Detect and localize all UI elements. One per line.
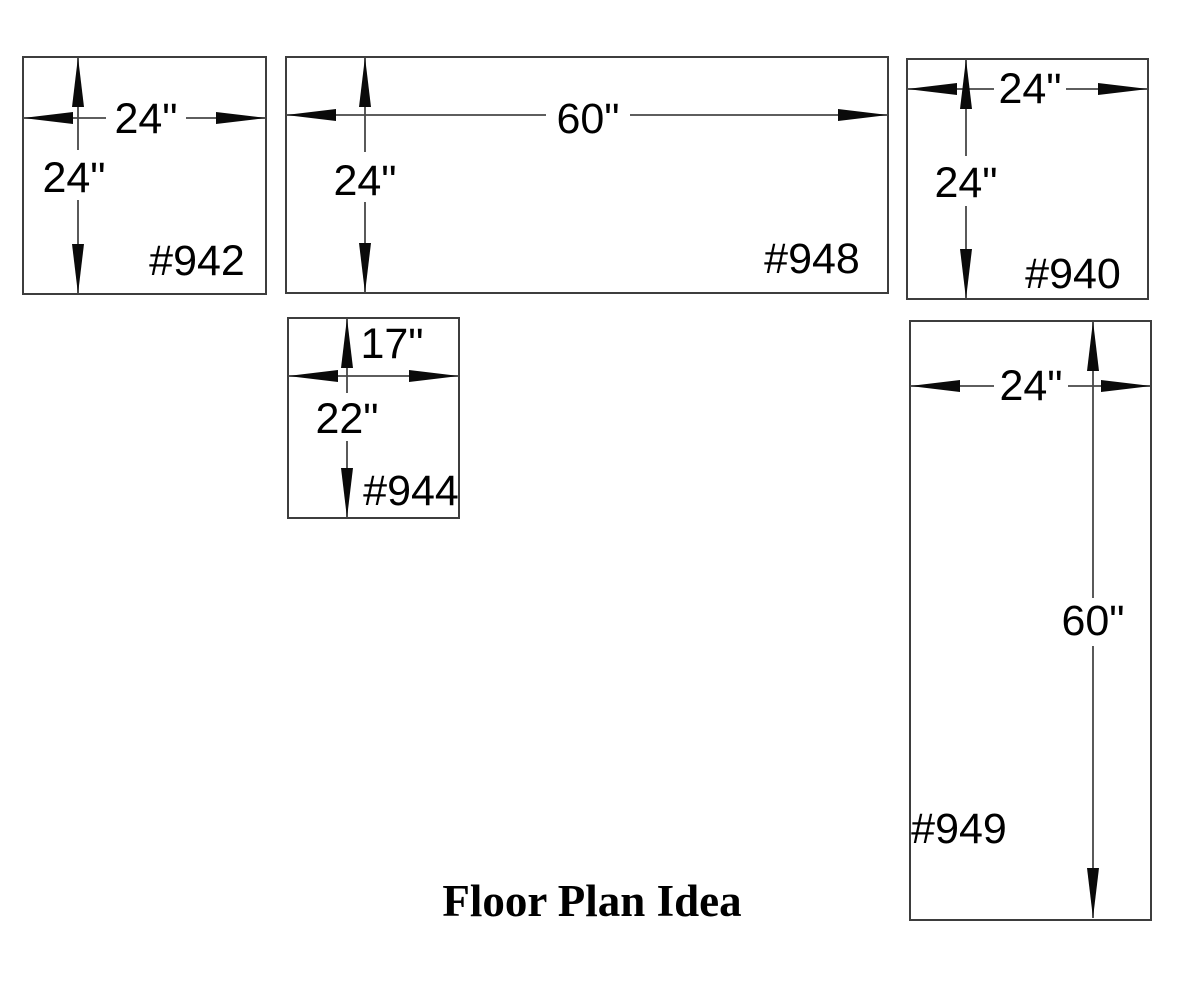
cabinet-940-id-label: #940 bbox=[1025, 250, 1121, 298]
floor-plan-page: 24" 24" #942 60" 24" #948 24" 24" #9 bbox=[0, 0, 1200, 1000]
cabinet-948: 60" 24" #948 bbox=[286, 57, 888, 293]
cabinet-949-id-label: #949 bbox=[911, 805, 1007, 853]
cabinet-942: 24" 24" #942 bbox=[23, 57, 266, 294]
cabinet-942-id-label: #942 bbox=[149, 237, 245, 285]
floor-plan-canvas: 24" 24" #942 60" 24" #948 24" 24" #9 bbox=[0, 0, 1200, 1000]
diagram-title: Floor Plan Idea bbox=[442, 876, 741, 926]
cabinet-948-width-label: 60" bbox=[556, 95, 619, 143]
cabinet-949-height-label: 60" bbox=[1061, 597, 1124, 645]
cabinet-949-width-label: 24" bbox=[999, 362, 1062, 410]
cabinet-944-width-label: 17" bbox=[360, 320, 423, 368]
cabinet-940: 24" 24" #940 bbox=[907, 59, 1148, 299]
cabinet-948-id-label: #948 bbox=[764, 235, 860, 283]
cabinet-944-height-label: 22" bbox=[315, 395, 378, 443]
cabinet-940-height-label: 24" bbox=[934, 159, 997, 207]
cabinet-944-id-label: #944 bbox=[363, 467, 459, 515]
cabinet-949: 24" 60" #949 bbox=[910, 321, 1151, 920]
cabinet-942-width-label: 24" bbox=[114, 95, 177, 143]
cabinet-948-height-label: 24" bbox=[333, 157, 396, 205]
cabinet-944: 17" 22" #944 bbox=[288, 318, 459, 518]
cabinet-940-width-label: 24" bbox=[998, 65, 1061, 113]
cabinet-942-height-label: 24" bbox=[42, 154, 105, 202]
